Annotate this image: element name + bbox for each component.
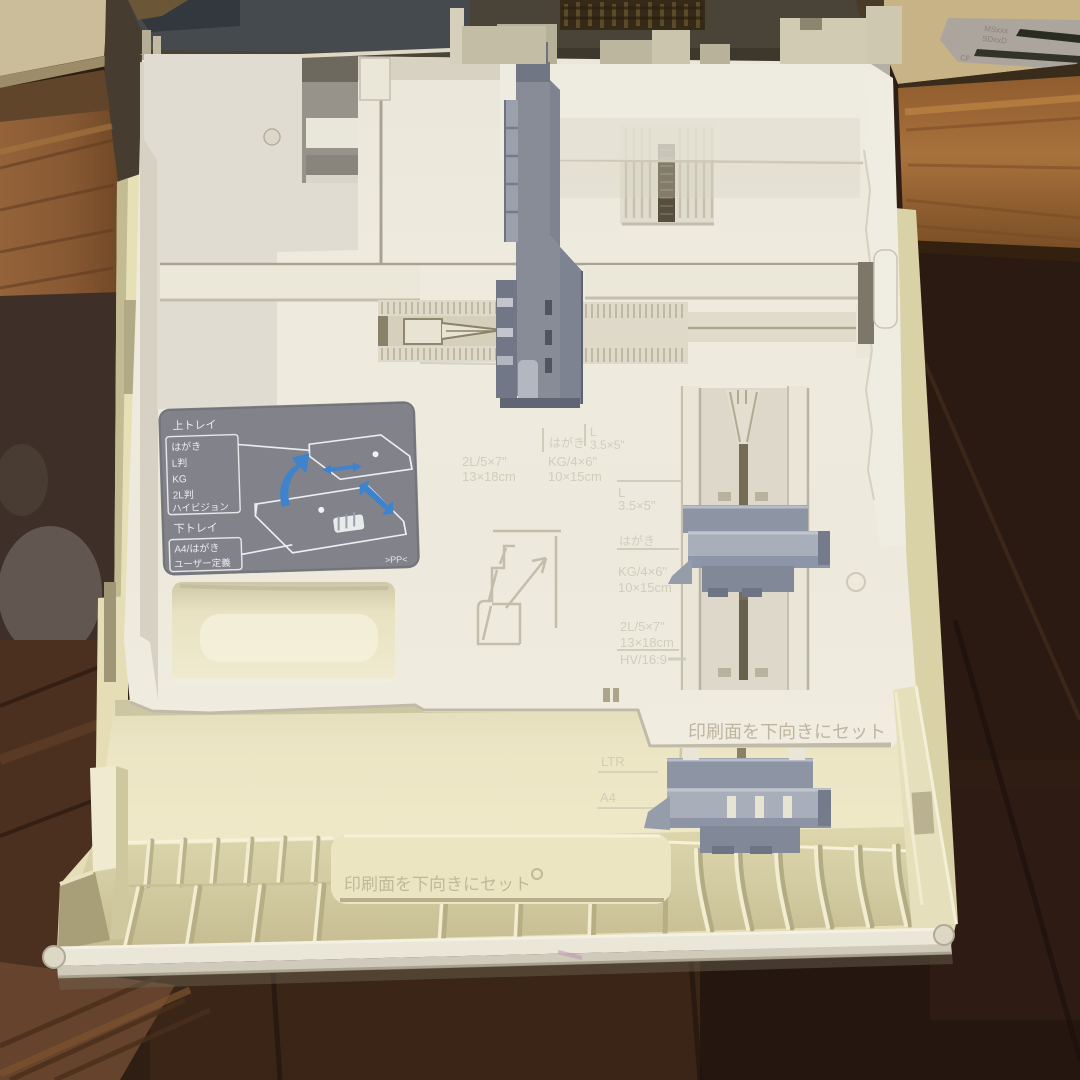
svg-text:ユーザー定義: ユーザー定義	[174, 557, 232, 571]
svg-text:印刷面を下向きにセット: 印刷面を下向きにセット	[688, 722, 886, 742]
svg-text:CF: CF	[960, 53, 971, 63]
svg-text:はがき: はがき	[549, 435, 585, 450]
svg-text:2L/5×7": 2L/5×7"	[462, 454, 507, 469]
svg-text:13×18cm: 13×18cm	[620, 635, 674, 650]
svg-text:HV/16:9: HV/16:9	[620, 652, 667, 667]
svg-text:3.5×5": 3.5×5"	[618, 498, 656, 513]
svg-text:L: L	[590, 425, 597, 439]
svg-text:10×15cm: 10×15cm	[618, 580, 672, 595]
svg-text:L判: L判	[172, 457, 188, 469]
svg-text:2L/5×7": 2L/5×7"	[620, 619, 665, 634]
svg-text:はがき: はがき	[171, 440, 201, 454]
svg-text:KG/4×6": KG/4×6"	[618, 564, 667, 579]
svg-text:上トレイ: 上トレイ	[172, 418, 216, 432]
svg-text:13×18cm: 13×18cm	[462, 469, 516, 484]
svg-text:印刷面を下向きにセット: 印刷面を下向きにセット	[344, 875, 531, 894]
svg-text:ハイビジョン: ハイビジョン	[172, 502, 229, 515]
svg-text:KG/4×6": KG/4×6"	[548, 454, 597, 469]
svg-text:下トレイ: 下トレイ	[174, 522, 218, 535]
svg-text:>PP<: >PP<	[385, 554, 408, 565]
svg-text:2L判: 2L判	[173, 489, 194, 502]
svg-text:はがき: はがき	[619, 533, 655, 548]
svg-text:LTR: LTR	[601, 754, 625, 769]
svg-text:10×15cm: 10×15cm	[548, 469, 602, 484]
svg-text:A4: A4	[600, 790, 616, 805]
svg-text:KG: KG	[172, 474, 187, 485]
svg-text:3.5×5": 3.5×5"	[590, 438, 625, 452]
